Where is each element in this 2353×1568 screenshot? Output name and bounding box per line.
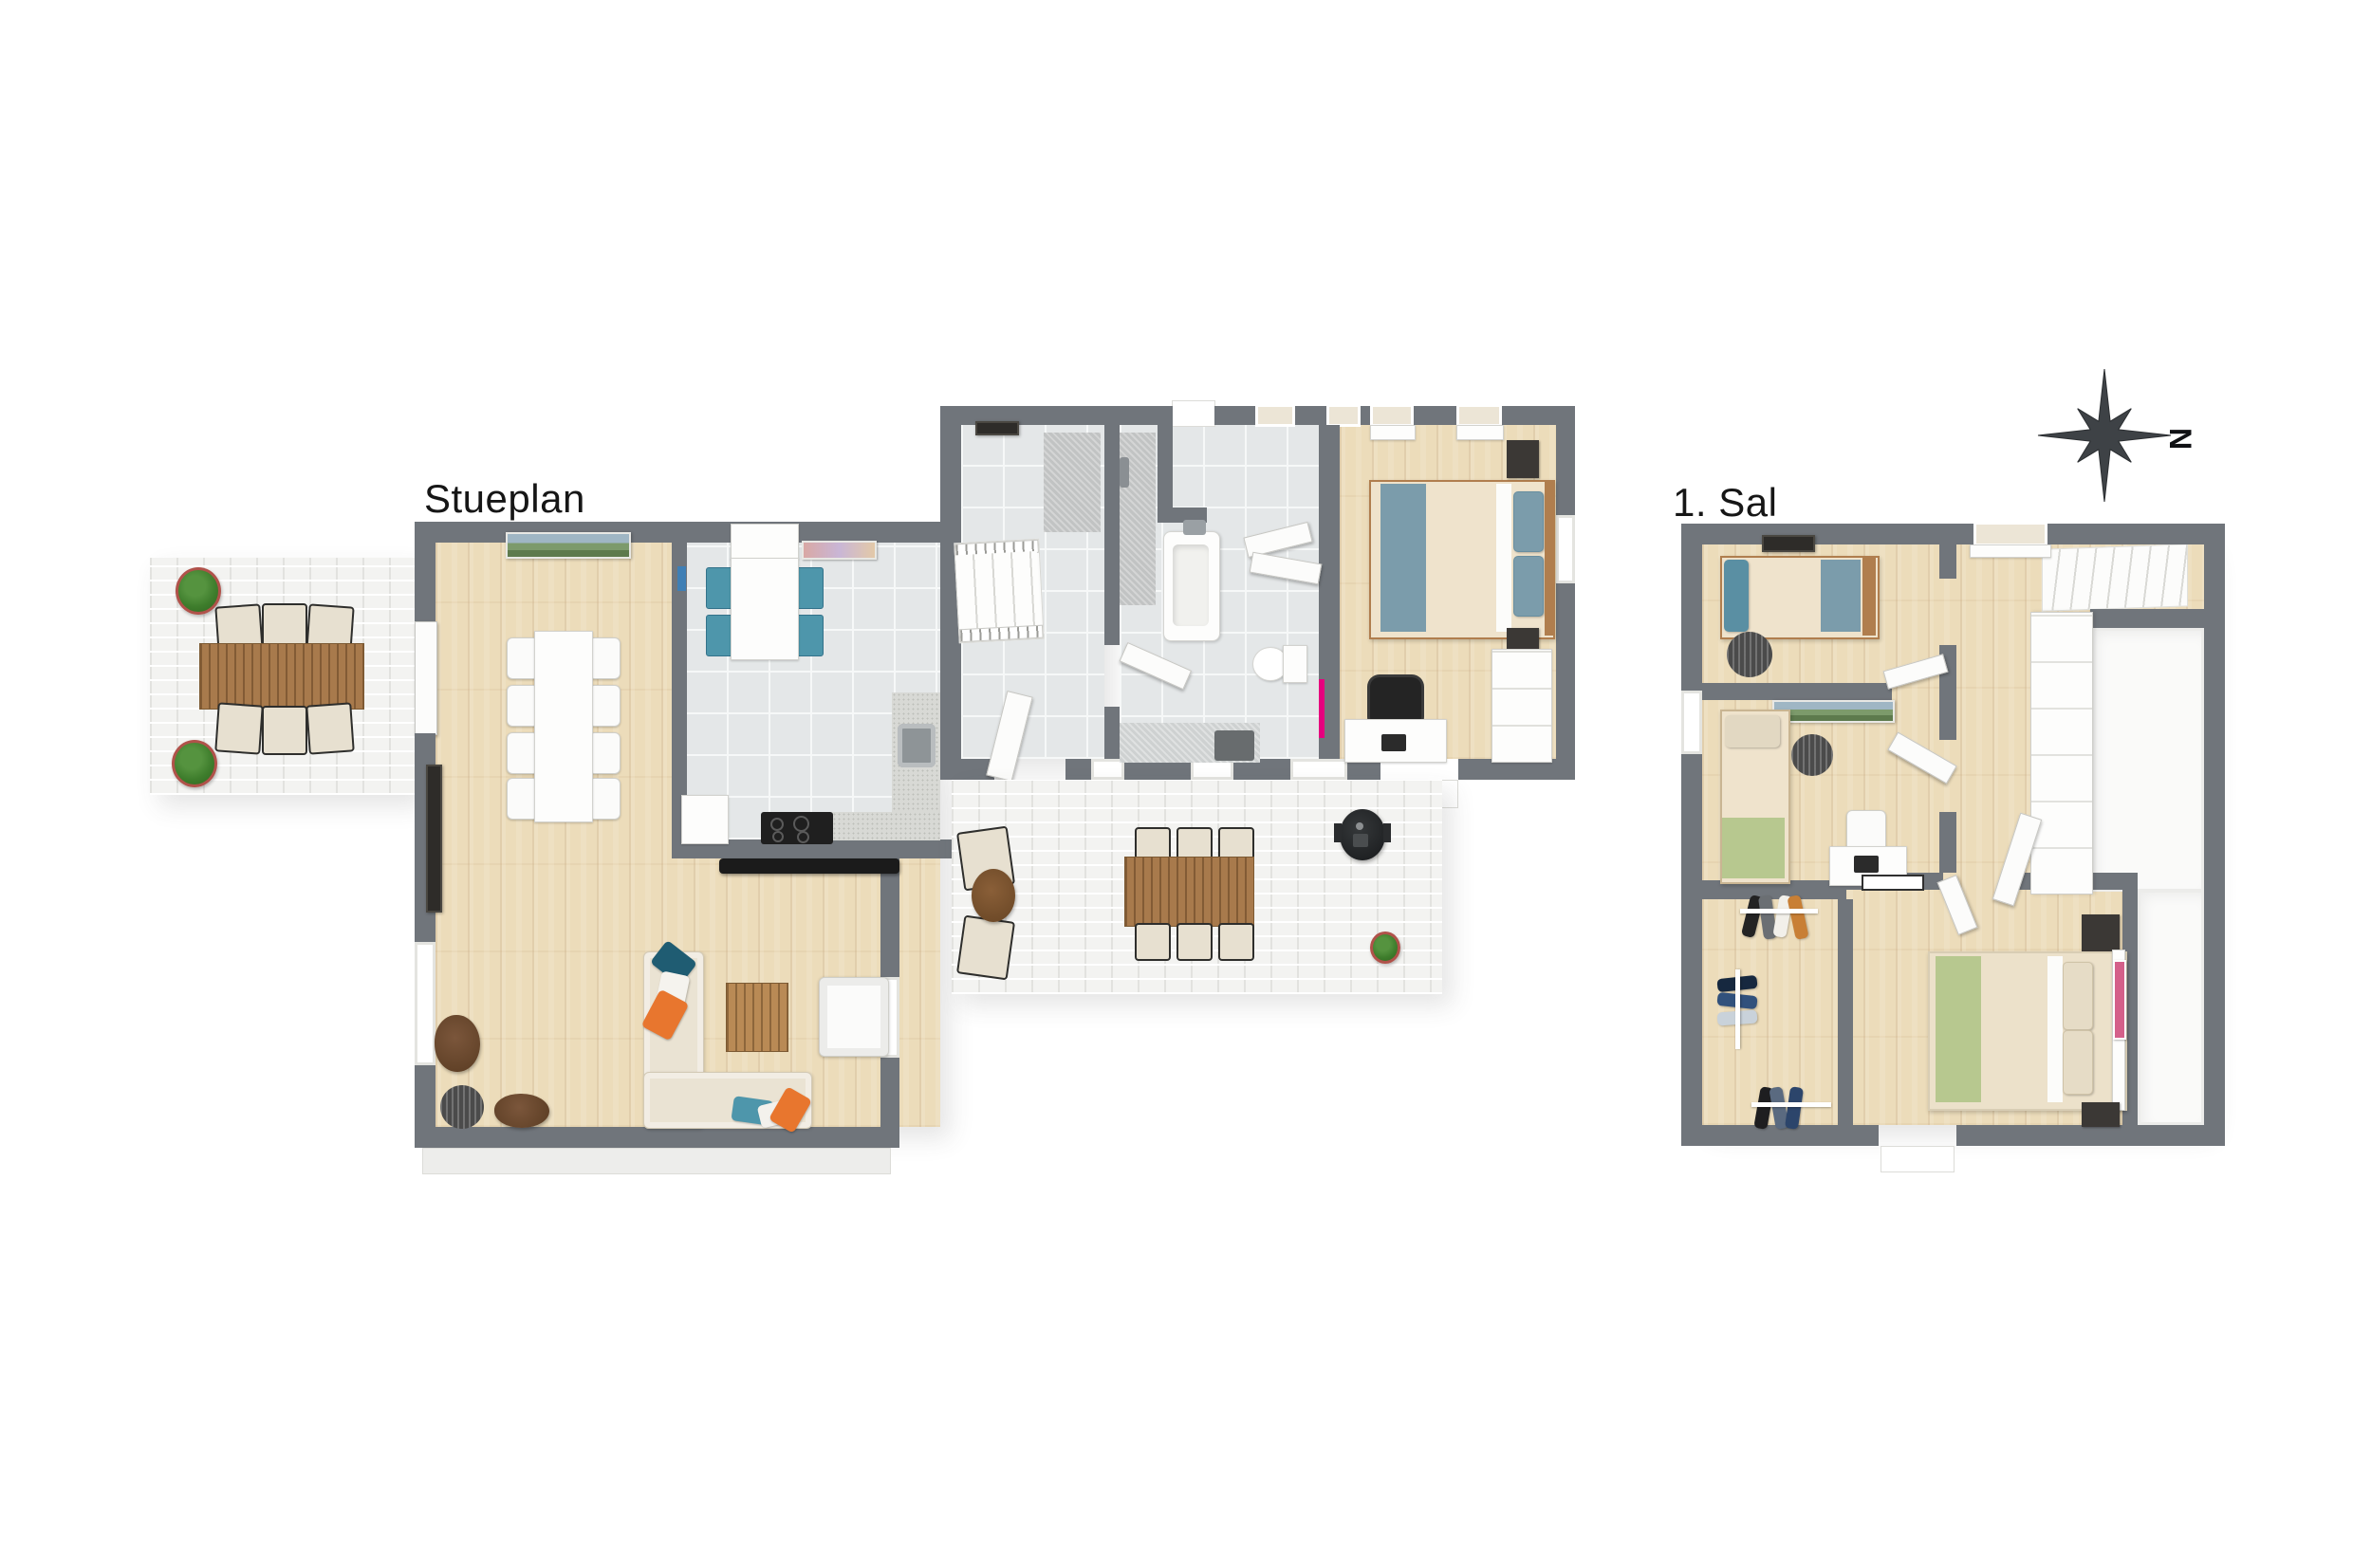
- potted-plant: [176, 567, 221, 615]
- window: [415, 942, 435, 1065]
- window: [1973, 522, 2047, 546]
- round-rug: [1791, 734, 1833, 776]
- pink-accent: [1319, 679, 1325, 738]
- armchair: [819, 977, 889, 1057]
- window: [1290, 759, 1347, 780]
- window: [1255, 404, 1295, 427]
- landscape-art: [506, 532, 631, 559]
- wall: [880, 858, 899, 977]
- dining-chair: [588, 732, 621, 774]
- terrace-dining-table: [199, 643, 364, 710]
- wall: [1681, 524, 1702, 691]
- bed-blanket-green: [1936, 956, 1981, 1102]
- tall-wardrobe: [2030, 612, 2093, 895]
- stairwell-void: [2138, 890, 2204, 1125]
- window-sill: [1456, 425, 1504, 440]
- bed-pillow: [1513, 556, 1544, 617]
- wall: [1104, 707, 1120, 759]
- wall: [2047, 524, 2225, 544]
- wall: [415, 522, 961, 543]
- wall: [1414, 406, 1456, 425]
- bedroom2-art: [1772, 700, 1895, 723]
- wall: [1681, 754, 1702, 1146]
- upper-door-step: [1881, 1146, 1955, 1172]
- clothes-rail: [1740, 909, 1818, 913]
- upper-floor-label: 1. Sal: [1673, 480, 1777, 526]
- framed-art-pink: [2113, 960, 2126, 1040]
- entry-door-step: [1172, 400, 1215, 427]
- single-bed-green: [1720, 710, 1790, 884]
- round-stool-dark: [440, 1085, 484, 1129]
- grill-handle: [1334, 823, 1342, 842]
- wall: [1361, 406, 1370, 425]
- bed-pillow: [1724, 560, 1749, 632]
- bed-sheet-fold: [1496, 484, 1511, 632]
- window-sill: [1970, 544, 2051, 558]
- wall: [2090, 609, 2204, 628]
- bed-pillow: [2063, 1030, 2093, 1095]
- terrace-chair: [306, 702, 355, 754]
- hall-closet: [1044, 433, 1101, 532]
- wall: [1939, 544, 1956, 579]
- wall: [1158, 406, 1173, 512]
- window-sill: [1370, 425, 1416, 440]
- potted-plant: [172, 740, 217, 787]
- window: [1326, 404, 1361, 427]
- tv: [719, 858, 899, 874]
- staircase: [954, 539, 1044, 644]
- dresser: [1491, 649, 1552, 763]
- window: [1681, 691, 1702, 754]
- burner: [797, 831, 809, 843]
- double-bed-green: [1928, 951, 2127, 1111]
- kitchen-counter: [832, 812, 940, 840]
- kitchen-sink: [898, 724, 936, 767]
- bbq-grill: [1340, 809, 1385, 860]
- patio-dining-table: [1124, 857, 1254, 927]
- cooktop: [761, 812, 833, 844]
- floorplan-image: Stueplan 1. Sal N: [0, 0, 2353, 1568]
- bed-sheet-fold: [2047, 956, 2063, 1102]
- shower-drain: [1214, 730, 1254, 761]
- dining-chair: [588, 685, 621, 727]
- bed-blanket-green: [1722, 818, 1785, 878]
- bath-faucet: [1183, 520, 1206, 535]
- wall: [880, 1058, 899, 1148]
- wall: [1838, 899, 1853, 1125]
- hall-art: [975, 421, 1019, 435]
- wall: [1556, 406, 1575, 515]
- kitchen-base-cabinet: [681, 795, 729, 844]
- grill-handle: [1383, 823, 1391, 842]
- stairwell-void: [2091, 628, 2204, 892]
- double-bed: [1369, 480, 1555, 639]
- footboard: [1862, 556, 1876, 636]
- grill-grate: [1353, 834, 1368, 847]
- dining-table: [534, 631, 593, 822]
- toilet-tank: [1283, 645, 1307, 683]
- terrace-door: [415, 621, 437, 735]
- kitchen-chair-teal: [795, 615, 824, 656]
- round-rug: [1727, 632, 1772, 677]
- patio-chair: [1218, 923, 1254, 961]
- clothes-rail: [1751, 1102, 1831, 1107]
- burner: [772, 831, 784, 842]
- window: [1556, 515, 1575, 583]
- laptop: [1854, 856, 1879, 873]
- lounge-chair: [956, 915, 1015, 981]
- upper-staircase: [2042, 544, 2188, 611]
- wall: [1295, 406, 1326, 425]
- bed-runner-blue: [1380, 484, 1426, 632]
- wall: [1214, 406, 1255, 425]
- nightstand: [2082, 914, 2120, 952]
- bathtub-basin: [1173, 544, 1209, 626]
- wall-accent-blue: [677, 566, 686, 591]
- kitchen-art: [802, 541, 877, 560]
- ground-floor-label: Stueplan: [424, 476, 585, 522]
- window: [1456, 404, 1502, 427]
- bed-blanket-blue: [1821, 560, 1861, 632]
- compass-north-letter: N: [2162, 428, 2197, 450]
- kitchen-table: [731, 558, 799, 660]
- wall: [1104, 425, 1120, 645]
- grill-knob: [1356, 822, 1363, 830]
- window: [1370, 404, 1414, 427]
- terrace-chair: [214, 702, 264, 754]
- patio-chair: [1135, 923, 1171, 961]
- radiator: [1862, 875, 1924, 891]
- burner: [793, 816, 809, 832]
- wall: [1956, 1125, 2225, 1146]
- tall-dark-art: [426, 765, 442, 913]
- nightstand: [2082, 1102, 2120, 1127]
- pouf: [494, 1094, 549, 1128]
- bed-pillow: [1725, 715, 1780, 747]
- pouf: [435, 1015, 480, 1072]
- wall: [1065, 759, 1091, 780]
- kitchen-chair-teal: [795, 567, 824, 609]
- front-step: [422, 1148, 891, 1174]
- laptop: [1381, 734, 1406, 751]
- coffee-table: [726, 983, 788, 1052]
- compass-rose-icon: [2035, 366, 2174, 505]
- dining-chair: [588, 778, 621, 820]
- wall: [415, 522, 435, 621]
- burner: [770, 818, 784, 831]
- wall: [1939, 812, 1956, 873]
- terrace-chair: [262, 706, 307, 755]
- dining-chair: [588, 637, 621, 679]
- wall: [1556, 583, 1575, 780]
- bathtub: [1163, 531, 1220, 641]
- bed-pillow: [2063, 962, 2093, 1030]
- nightstand: [1507, 440, 1539, 478]
- wall: [415, 1127, 899, 1148]
- wall: [1681, 524, 1973, 544]
- potted-plant: [1370, 932, 1400, 964]
- wall: [1702, 683, 1892, 700]
- wall: [940, 759, 994, 780]
- headboard: [1545, 480, 1553, 636]
- patio-chair: [1176, 923, 1213, 961]
- clothes-rail: [1735, 969, 1740, 1049]
- bistro-table: [972, 869, 1015, 922]
- bed-pillow: [1513, 491, 1544, 552]
- single-bed-blue: [1720, 556, 1880, 639]
- kitchen-wall-cabinet: [731, 524, 799, 560]
- wall: [2204, 524, 2225, 1146]
- shower-fixture: [1120, 457, 1129, 488]
- bedroom1-art: [1762, 535, 1815, 552]
- stair-treads: [955, 551, 1041, 629]
